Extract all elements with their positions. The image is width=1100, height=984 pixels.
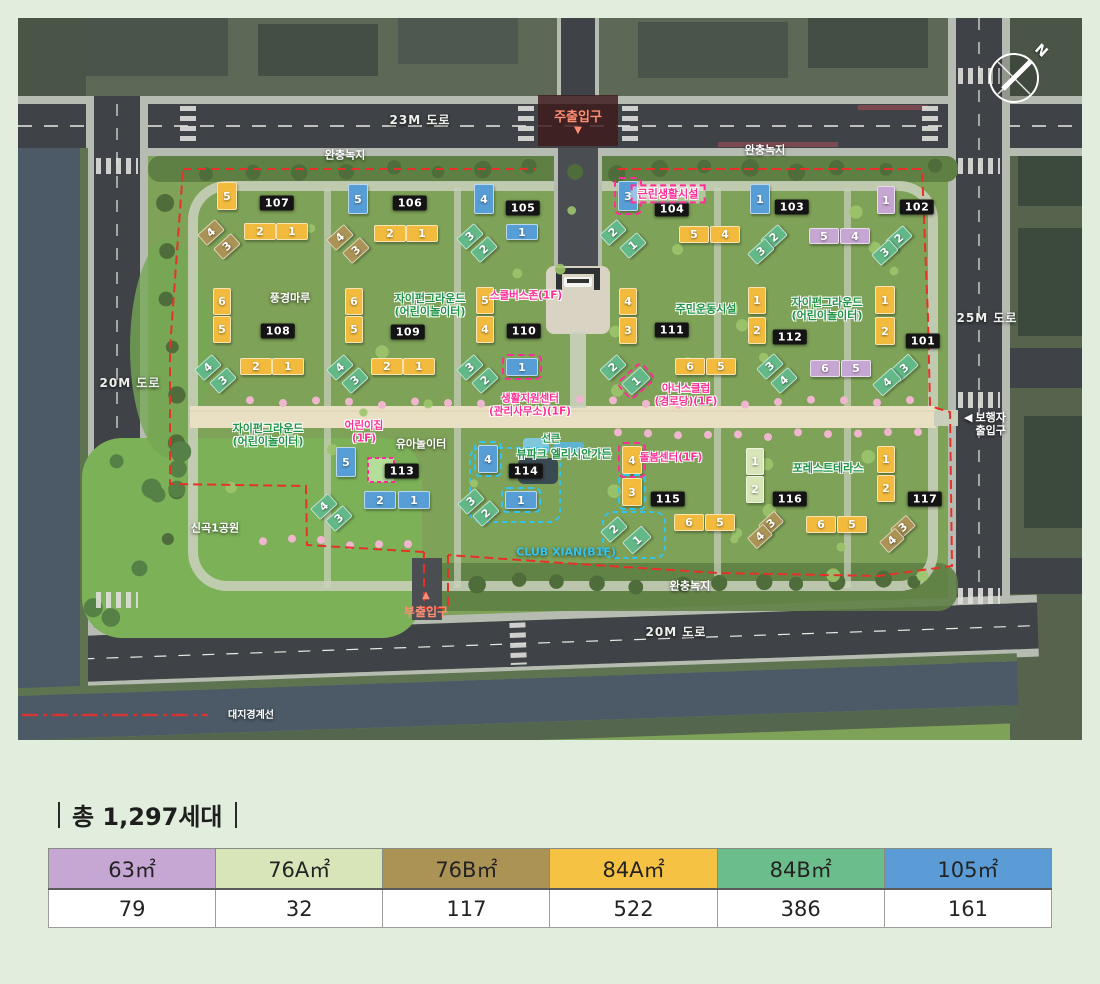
building-103-line-1: 1: [750, 184, 770, 214]
unit-type-header-76B㎡: 76B㎡: [383, 849, 550, 890]
building-badge-113: 113: [385, 464, 419, 479]
building-106-line-5: 5: [348, 184, 368, 214]
compass-icon: N: [987, 47, 1045, 105]
building-badge-108: 108: [261, 324, 295, 339]
map-label-viewpark-elysian-garden: 뷰파크 엘리시안가든: [517, 447, 612, 460]
building-115-line-5: 5: [705, 514, 735, 531]
building-116-line-1: 1: [746, 448, 764, 475]
main-entrance-sign: 주출입구 ▼: [538, 95, 618, 146]
building-111-line-2: 2: [599, 353, 627, 380]
building-105-line-4: 4: [474, 184, 494, 214]
building-102-line-5: 5: [809, 228, 839, 244]
building-106-line-2: 2: [374, 225, 406, 242]
building-112-line-2: 2: [748, 317, 766, 344]
up-arrow-icon: ▲: [404, 591, 448, 601]
pedestrian-entrance-label-line1: 보행자: [975, 411, 1005, 424]
site-plan-rendering: 1234101154231021542310332110443211055432…: [18, 18, 1082, 740]
map-label-living-support-center: 생활지원센터(관리사무소)(1F): [489, 392, 571, 417]
building-103-line-5: 5: [679, 226, 709, 243]
building-badge-101: 101: [906, 334, 940, 349]
total-households-text: 총 1,297세대: [72, 797, 223, 832]
building-102-line-4: 4: [840, 228, 870, 244]
building-113-line-2: 2: [364, 491, 396, 509]
building-105-line-1: 1: [506, 224, 538, 240]
unit-count-84B㎡: 386: [717, 889, 884, 928]
unit-count-76B㎡: 117: [383, 889, 550, 928]
building-badge-103: 103: [775, 200, 809, 215]
map-label-singok-park: 신곡1공원: [191, 521, 239, 534]
building-101-line-1: 1: [875, 286, 895, 314]
down-arrow-icon: ▼: [574, 126, 582, 136]
building-badge-115: 115: [651, 492, 685, 507]
building-115-line-6: 6: [674, 514, 704, 531]
building-badge-104: 104: [655, 202, 689, 217]
map-label-road-25m: 25M 도로: [957, 311, 1018, 325]
building-116-line-5: 5: [837, 516, 867, 533]
map-label-buffer-green-top-left: 완충녹지: [325, 148, 365, 161]
building-108-line-6: 6: [213, 288, 231, 315]
building-114-line-1: 1: [505, 491, 537, 509]
building-106-line-1: 1: [406, 225, 438, 242]
unit-count-row: 7932117522386161: [49, 889, 1052, 928]
unit-type-header-84A㎡: 84A㎡: [550, 849, 717, 890]
building-104-line-1: 1: [619, 231, 647, 258]
building-112-line-6: 6: [810, 360, 840, 377]
map-label-pungkyung-maru: 풍경마루: [270, 291, 310, 304]
map-label-fun-ground-southwest: 자이펀그라운드(어린이놀이터): [233, 422, 304, 448]
building-107-line-1: 1: [276, 223, 308, 240]
building-badge-105: 105: [506, 201, 540, 216]
map-label-school-bus-zone: 스쿨버스존(1F): [490, 290, 562, 303]
unit-count-105㎡: 161: [884, 889, 1051, 928]
building-badge-102: 102: [900, 200, 934, 215]
sub-entrance-label: 부출입구: [404, 605, 448, 619]
title-bar-right: [235, 802, 237, 828]
building-115-line-2: 2: [600, 515, 628, 542]
building-101-line-2: 2: [875, 317, 895, 345]
building-badge-117: 117: [908, 492, 942, 507]
building-109-line-2: 2: [371, 358, 403, 375]
building-badge-107: 107: [260, 196, 294, 211]
building-107-line-2: 2: [244, 223, 276, 240]
map-label-road-20m-left: 20M 도로: [100, 376, 161, 390]
building-109-line-5: 5: [345, 316, 363, 343]
unit-type-table: 63㎡76A㎡76B㎡84A㎡84B㎡105㎡ 7932117522386161: [48, 848, 1052, 928]
map-label-neighborhood-facility: 근린생활시설: [631, 184, 706, 203]
unit-type-header-row: 63㎡76A㎡76B㎡84A㎡84B㎡105㎡: [49, 849, 1052, 890]
building-112-line-5: 5: [841, 360, 871, 377]
building-108-line-1: 1: [272, 358, 304, 375]
building-badge-114: 114: [509, 464, 543, 479]
building-116-line-2: 2: [746, 476, 764, 503]
building-104-line-2: 2: [599, 218, 627, 245]
building-badge-110: 110: [507, 324, 541, 339]
building-110-line-4: 4: [476, 316, 494, 343]
unit-type-header-76A㎡: 76A㎡: [216, 849, 383, 890]
unit-count-63㎡: 79: [49, 889, 216, 928]
unit-type-header-84B㎡: 84B㎡: [717, 849, 884, 890]
building-111-line-5: 5: [706, 358, 736, 375]
building-107-line-5: 5: [217, 182, 237, 210]
building-badge-111: 111: [655, 323, 689, 338]
title-bar-left: [58, 802, 60, 828]
building-111-line-3: 3: [619, 317, 637, 344]
map-label-road-23m: 23M 도로: [390, 113, 451, 127]
building-109-line-6: 6: [345, 288, 363, 315]
building-115-line-1: 1: [622, 525, 652, 554]
map-label-toddler-playground: 유아놀이터: [396, 437, 447, 450]
building-117-line-2: 2: [877, 475, 895, 502]
left-arrow-icon: ◀: [964, 411, 972, 424]
pedestrian-entrance-sign: ◀ 보행자 출입구: [964, 411, 1006, 437]
map-label-forest-terrace: 포레스트테라스: [793, 461, 864, 474]
unit-type-header-63㎡: 63㎡: [49, 849, 216, 890]
building-badge-109: 109: [391, 325, 425, 340]
unit-count-84A㎡: 522: [550, 889, 717, 928]
map-label-sunken: 선큰: [542, 434, 560, 446]
unit-type-header-105㎡: 105㎡: [884, 849, 1051, 890]
building-badge-112: 112: [773, 330, 807, 345]
pedestrian-entrance-label-line2: 출입구: [975, 424, 1005, 437]
map-label-site-boundary-line: 대지경계선: [228, 710, 274, 722]
building-111-line-6: 6: [675, 358, 705, 375]
building-114-line-4: 4: [478, 445, 498, 473]
unit-count-76A㎡: 32: [216, 889, 383, 928]
building-102-line-1: 1: [877, 186, 895, 214]
map-label-honors-club: 아너스클럽(경로당)(1F): [655, 382, 718, 407]
building-badge-116: 116: [773, 492, 807, 507]
building-111-line-4: 4: [619, 288, 637, 315]
building-111-line-1: 1: [621, 366, 651, 395]
building-103-line-4: 4: [710, 226, 740, 243]
building-108-line-2: 2: [240, 358, 272, 375]
building-110-line-1: 1: [506, 358, 538, 376]
map-label-buffer-green-bottom: 완충녹지: [670, 579, 710, 592]
building-116-line-6: 6: [806, 516, 836, 533]
map-label-daycare: 어린이집(1F): [345, 419, 384, 444]
sub-entrance-sign: ▲ 부출입구: [404, 591, 448, 620]
map-label-resident-sports: 주민운동시설: [676, 302, 737, 315]
main-entrance-label: 주출입구: [554, 106, 602, 125]
building-113-line-1: 1: [398, 491, 430, 509]
map-label-club-xian: CLUB XIAN(B1F): [516, 545, 616, 558]
building-117-line-1: 1: [877, 446, 895, 473]
building-115-line-3: 3: [622, 478, 642, 506]
building-109-line-1: 1: [403, 358, 435, 375]
map-label-care-center: 돌봄센터(1F): [640, 452, 703, 465]
map-label-fun-ground-center: 자이펀그라운드(어린이놀이터): [395, 292, 466, 318]
map-label-buffer-green-top-right: 완충녹지: [745, 143, 785, 156]
page: 1234101154231021542310332110443211055432…: [0, 0, 1100, 984]
total-households-title: 총 1,297세대: [46, 797, 249, 832]
map-label-road-20m-bottom: 20M 도로: [646, 625, 707, 639]
map-label-fun-ground-right: 자이펀그라운드(어린이놀이터): [792, 296, 863, 322]
building-112-line-1: 1: [748, 287, 766, 314]
building-badge-106: 106: [393, 196, 427, 211]
building-113-line-5: 5: [336, 447, 356, 477]
building-108-line-5: 5: [213, 316, 231, 343]
